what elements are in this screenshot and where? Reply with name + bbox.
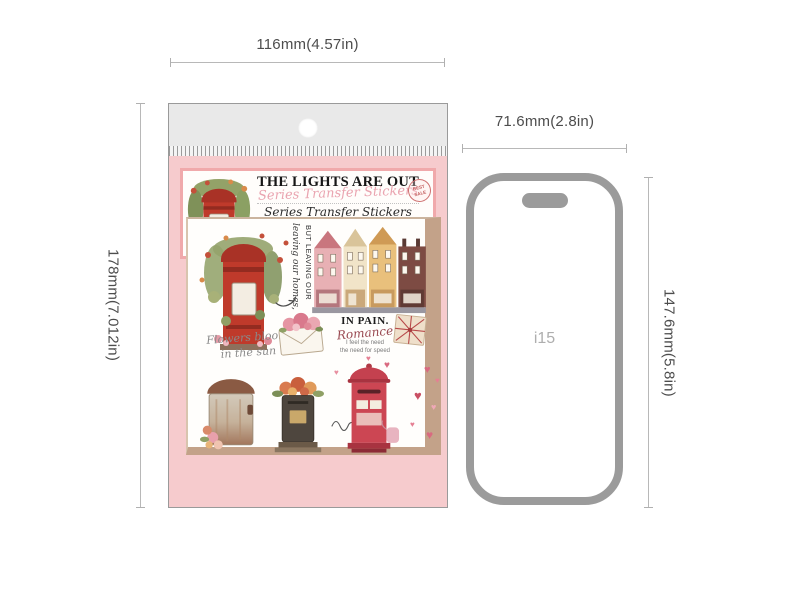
townhouses-illustration (310, 219, 428, 317)
hang-hole (298, 118, 318, 138)
rusty-mailbox-illustration (200, 371, 262, 453)
red-pillarbox-illustration (338, 361, 400, 455)
heart-icon: ♥ (424, 365, 431, 376)
curved-arrow-icon (274, 289, 298, 307)
heart-icon: ♥ (431, 403, 436, 412)
gift-parcel-illustration (392, 311, 430, 349)
sticker-package: THE LIGHTS ARE OUT Series Transfer Stick… (168, 103, 448, 508)
romance-note: I feel the need the need for speed (334, 340, 396, 356)
phone-height-line (648, 177, 649, 508)
heart-icon: ♥ (414, 389, 422, 402)
phone-outline: i15 (466, 173, 623, 505)
heart-icon: ♥ (384, 361, 390, 371)
rose-envelope-illustration (272, 311, 330, 357)
romance-note-line1: I feel the need (334, 340, 396, 348)
badge-bottom-text: SALE (414, 189, 427, 197)
package-hang-header (169, 104, 447, 146)
romance-note-line2: the need for speed (334, 348, 396, 356)
phone-width-label: 71.6mm(2.8in) (462, 113, 627, 130)
heart-icon: ♥ (426, 429, 433, 441)
package-height-line (140, 103, 141, 508)
heart-icon: ♥ (435, 377, 440, 385)
package-height-label: 178mm(7.012in) (102, 103, 124, 508)
phone-model-label: i15 (534, 330, 555, 348)
dynamic-island (522, 193, 568, 208)
sticker-sheet: leaving our homes, BUT LEAVING OUR (186, 217, 441, 455)
iron-mailbox-illustration (266, 377, 330, 455)
size-comparison-diagram: 116mm(4.57in) 178mm(7.012in) (0, 0, 790, 596)
tear-strip (169, 146, 447, 156)
package-width-line (170, 62, 445, 63)
phone-width-line (462, 148, 627, 149)
heart-icon: ♥ (334, 369, 339, 377)
phone-height-label: 147.6mm(5.8in) (658, 177, 680, 508)
heart-icon: ♥ (410, 421, 415, 429)
package-width-label: 116mm(4.57in) (170, 36, 445, 53)
heart-icon: ♥ (366, 355, 371, 363)
